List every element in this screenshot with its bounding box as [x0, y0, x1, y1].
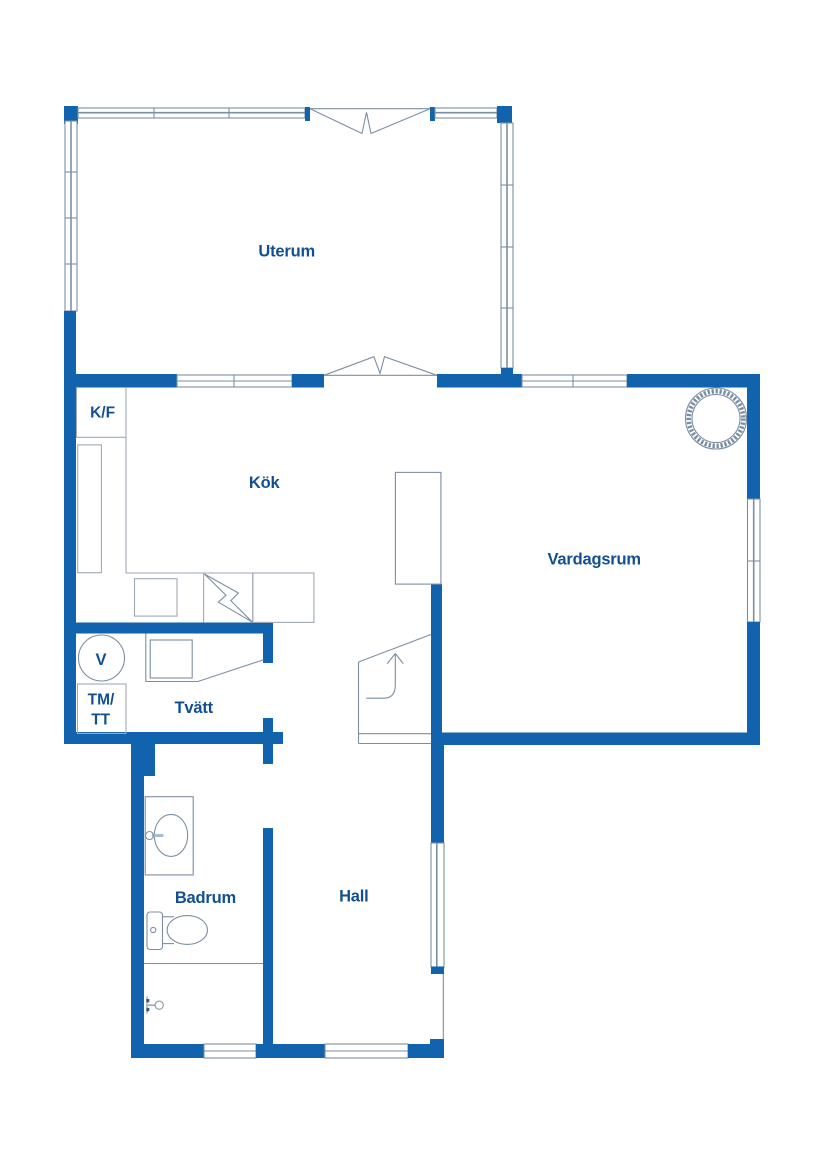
svg-text:Kök: Kök: [249, 474, 281, 492]
svg-text:TM/: TM/: [88, 691, 115, 708]
svg-text:Tvätt: Tvätt: [174, 699, 213, 717]
svg-text:Badrum: Badrum: [175, 889, 236, 907]
svg-text:Uterum: Uterum: [258, 242, 315, 260]
svg-text:K/F: K/F: [90, 405, 115, 422]
svg-text:Vardagsrum: Vardagsrum: [548, 550, 641, 568]
svg-text:V: V: [95, 651, 106, 669]
svg-text:Hall: Hall: [339, 887, 368, 905]
svg-text:TT: TT: [91, 712, 110, 729]
